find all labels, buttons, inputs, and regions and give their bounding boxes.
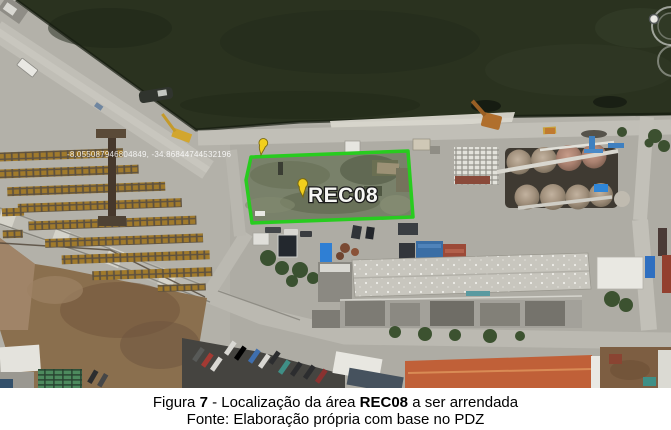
caption-text: a ser arrendada xyxy=(408,394,518,411)
green-containers xyxy=(38,369,82,388)
figure-caption: Figura 7 - Localização da área REC08 a s… xyxy=(0,388,671,430)
blue-tarp xyxy=(594,184,608,192)
caption-line2: Fonte: Elaboração própria com base no PD… xyxy=(0,411,671,428)
rec08-label: REC08 xyxy=(308,184,378,207)
satellite-map[interactable]: REC08 -8.055087946804849, -34.8684474453… xyxy=(0,0,671,388)
figure-number: 7 xyxy=(200,394,208,411)
caption-text: - Localização da área xyxy=(208,394,360,411)
gantry-crane xyxy=(108,132,116,226)
coordinates-label: -8.055087946804849, -34.86844744532196 xyxy=(67,150,232,159)
caption-text: Figura xyxy=(153,394,200,411)
compass-knob-icon xyxy=(650,15,659,24)
crane-shadow2 xyxy=(593,96,627,108)
caption-line1: Figura 7 - Localização da área REC08 a s… xyxy=(0,394,671,411)
quay-shed2 xyxy=(413,139,430,150)
bottom-right-dirt xyxy=(600,347,671,388)
caption-area-code: REC08 xyxy=(360,394,408,411)
figure-page: REC08 -8.055087946804849, -34.8684474453… xyxy=(0,0,671,430)
